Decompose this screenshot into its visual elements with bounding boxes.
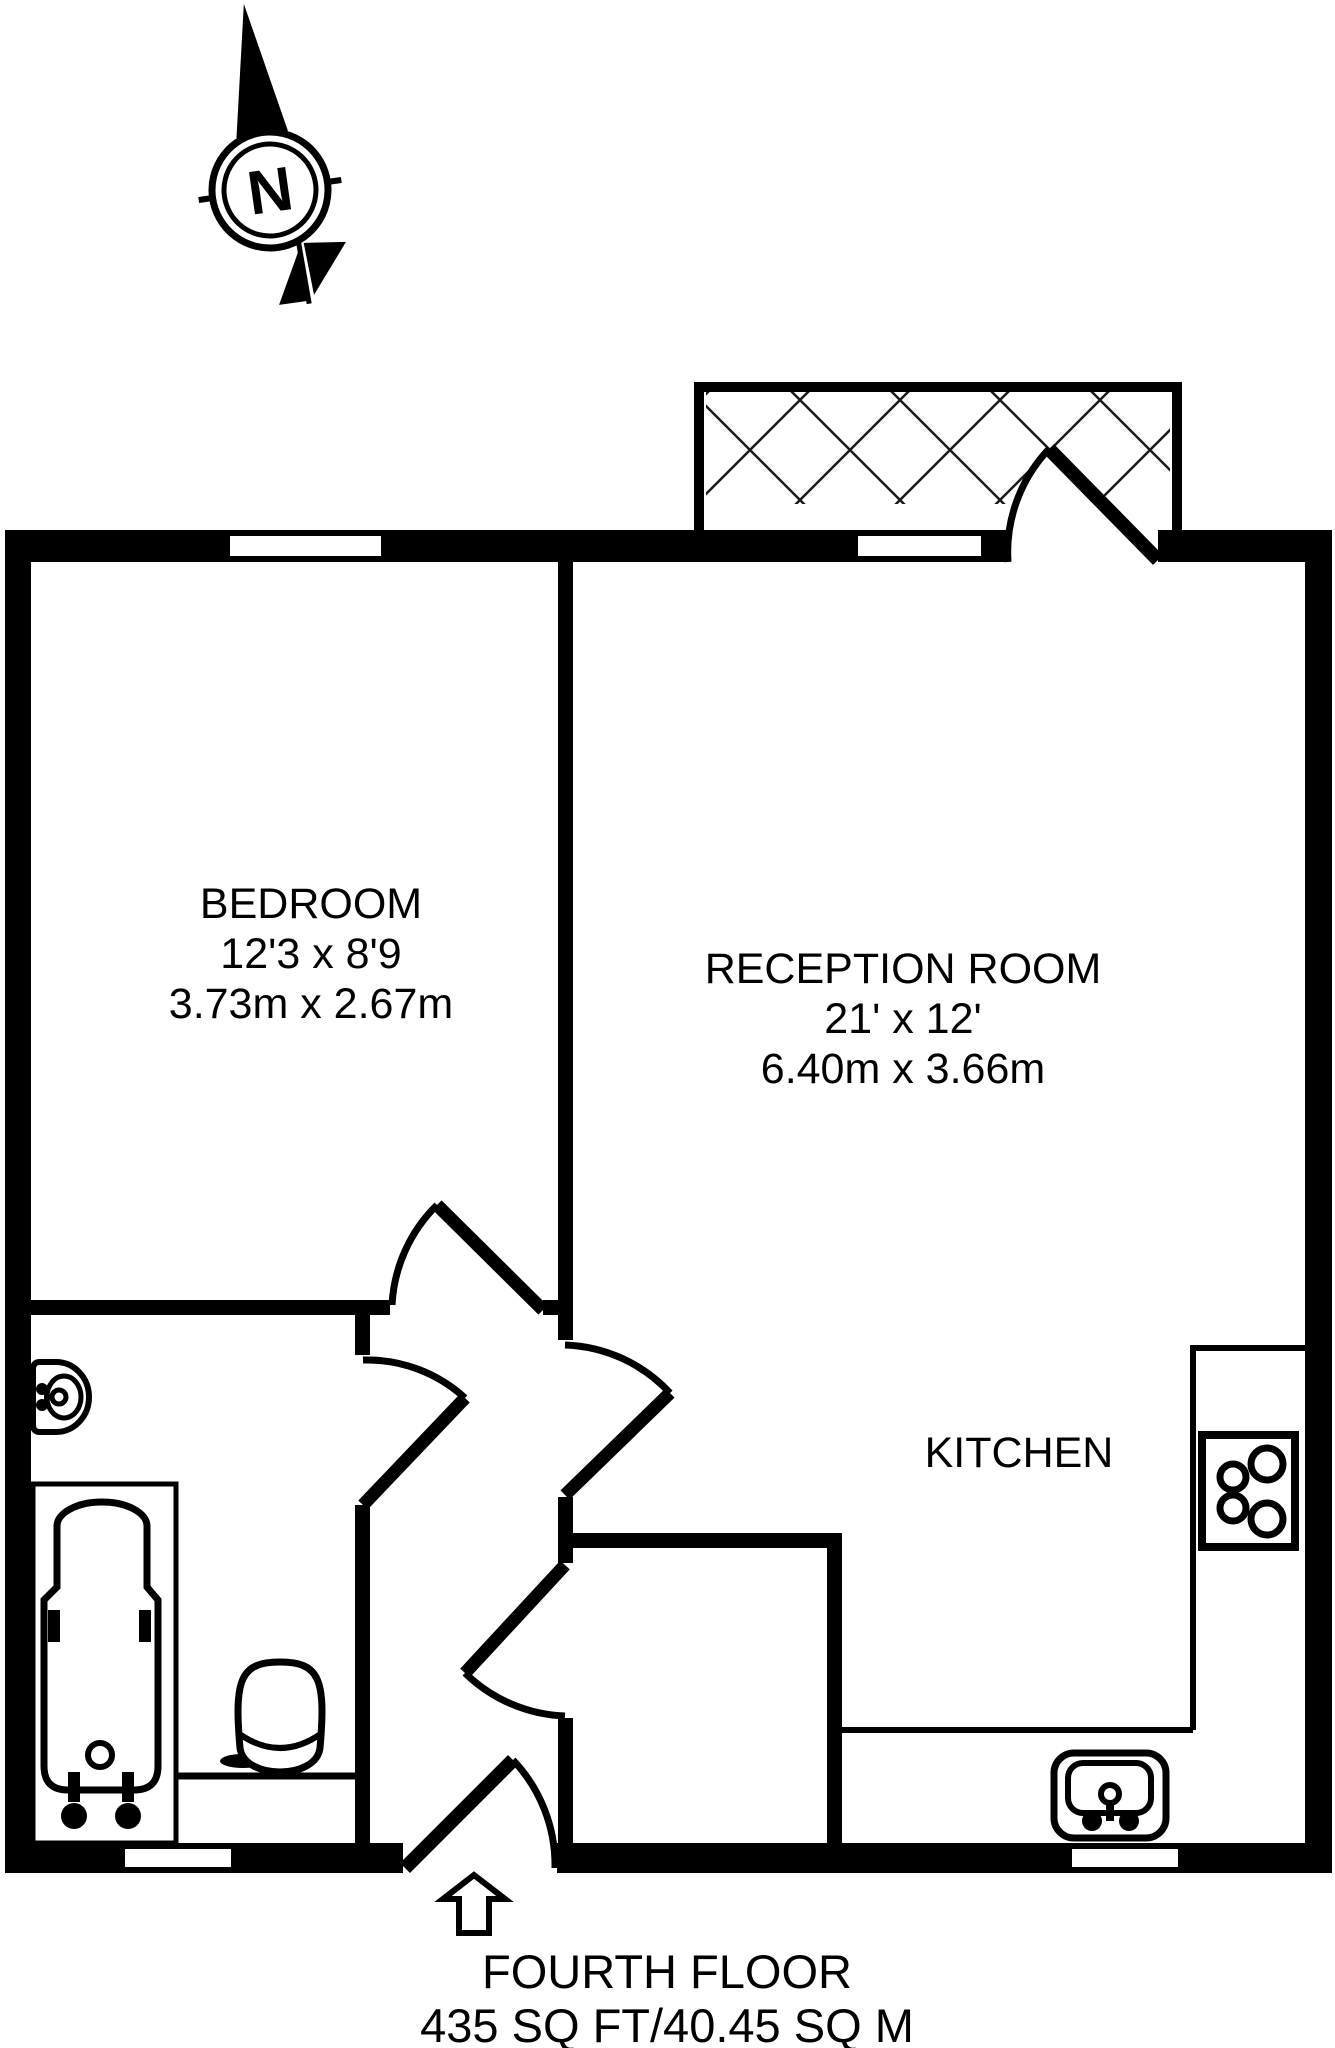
- bathtub-tap-left: [61, 1803, 87, 1829]
- bathtub-tap-stem-right: [122, 1772, 134, 1802]
- bathtub-grab-left: [48, 1610, 60, 1642]
- hob-burner-large-bottom: [1251, 1503, 1283, 1535]
- hob-burner-large-top: [1251, 1448, 1283, 1480]
- bathtub-icon: [33, 1484, 176, 1843]
- toilet-bowl: [238, 1662, 322, 1772]
- hob-burner-small-top: [1220, 1464, 1246, 1490]
- bathroom-sink-knob-top: [36, 1383, 48, 1395]
- bathroom-sink-knob-bottom: [36, 1399, 48, 1411]
- wall-bedroom-bathroom: [31, 1300, 390, 1315]
- wall-storage-top: [573, 1533, 842, 1548]
- reception-dims-metric: 6.40m x 3.66m: [761, 1045, 1045, 1093]
- floorplan-svg: N BEDROOM 12'3 x 8'9 3.73m x 2.67m RECEP…: [0, 0, 1335, 2048]
- bathtub-drain: [88, 1743, 112, 1767]
- wall-divider-nub: [543, 1300, 573, 1315]
- kitchen-sink-tap: [1101, 1785, 1119, 1803]
- wall-bathroom-hall-low: [355, 1505, 370, 1843]
- kitchen-sink-icon: [1054, 1753, 1166, 1838]
- wall-hall-reception-mid: [558, 1497, 573, 1563]
- kitchen-sink-knob-left: [1082, 1811, 1102, 1831]
- area-text: 435 SQ FT/40.45 SQ M: [420, 1999, 914, 2048]
- bedroom-dims-imperial: 12'3 x 8'9: [220, 930, 401, 978]
- kitchen-window: [1070, 1847, 1180, 1869]
- bathroom-window: [123, 1847, 233, 1869]
- bathroom-sink-tap: [52, 1390, 66, 1404]
- bedroom-window: [228, 534, 383, 558]
- compass-letter: N: [243, 154, 297, 229]
- reception-window: [856, 534, 983, 558]
- kitchen-label: KITCHEN: [925, 1429, 1114, 1477]
- hob-icon: [1202, 1435, 1295, 1547]
- balcony: [699, 387, 1177, 547]
- wall-bathroom-hall-top: [355, 1315, 370, 1355]
- kitchen-sink-knob-right: [1119, 1811, 1139, 1831]
- floor-title: FOURTH FLOOR: [482, 1945, 852, 1998]
- wall-storage-right: [827, 1548, 842, 1843]
- bedroom-label: BEDROOM: [200, 880, 422, 928]
- reception-dims-imperial: 21' x 12': [824, 995, 981, 1043]
- bedroom-dims-metric: 3.73m x 2.67m: [169, 980, 453, 1028]
- wall-hall-reception-low: [558, 1718, 573, 1843]
- wall-right: [1305, 530, 1332, 1873]
- bathroom-sink-icon: [33, 1362, 89, 1432]
- bathtub-tap-stem-left: [68, 1772, 80, 1802]
- wall-bedroom-reception: [558, 562, 573, 1340]
- bathtub-tap-right: [115, 1803, 141, 1829]
- footer: FOURTH FLOOR 435 SQ FT/40.45 SQ M: [420, 1945, 914, 2048]
- bathtub-grab-right: [139, 1610, 151, 1642]
- balcony-hatch: [706, 392, 1170, 504]
- hob-burner-small-bottom: [1220, 1495, 1246, 1521]
- floorplan-page: N BEDROOM 12'3 x 8'9 3.73m x 2.67m RECEP…: [0, 0, 1335, 2048]
- reception-label: RECEPTION ROOM: [705, 945, 1102, 993]
- wall-left: [5, 530, 31, 1873]
